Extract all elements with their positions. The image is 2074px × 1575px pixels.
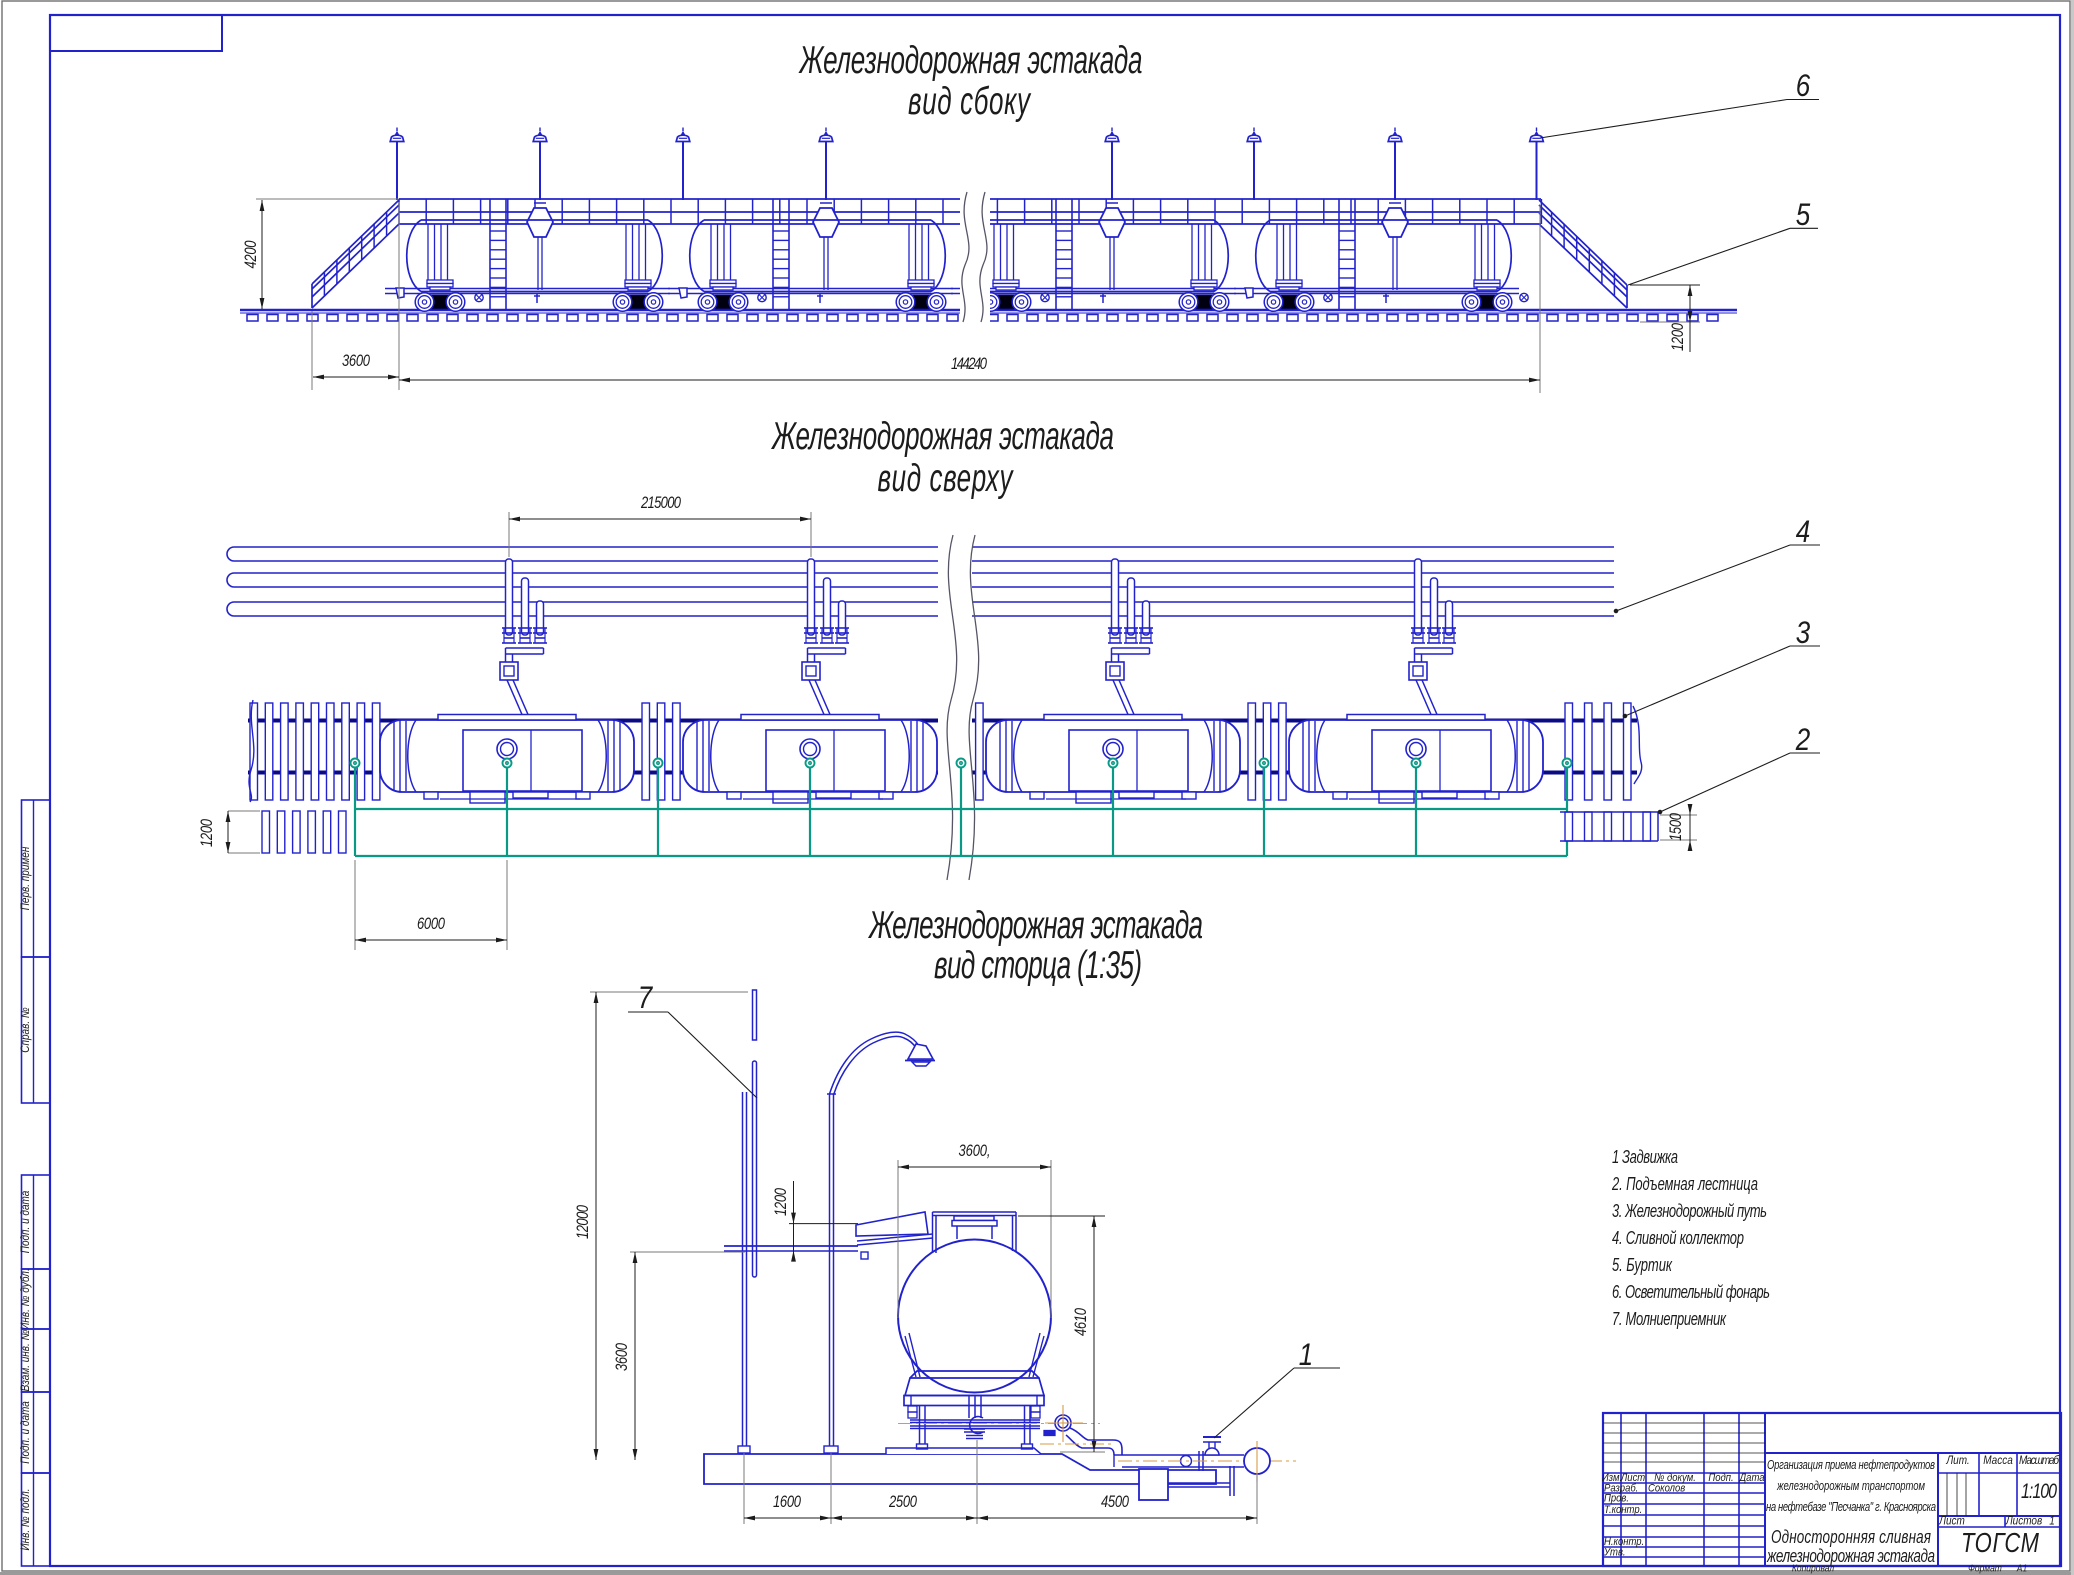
svg-text:Т.контр.: Т.контр. bbox=[1604, 1504, 1642, 1516]
svg-text:Железнодорожная эстакада: Железнодорожная эстакада bbox=[867, 904, 1203, 948]
svg-text:4610: 4610 bbox=[1073, 1307, 1091, 1336]
svg-text:Односторонняя сливная: Односторонняя сливная bbox=[1771, 1527, 1931, 1547]
svg-text:3. Железнодорожный путь: 3. Железнодорожный путь bbox=[1612, 1202, 1767, 1222]
svg-text:6000: 6000 bbox=[417, 916, 446, 934]
svg-text:1200: 1200 bbox=[199, 818, 217, 847]
svg-text:215000: 215000 bbox=[640, 495, 682, 513]
svg-text:А1: А1 bbox=[2016, 1563, 2027, 1574]
svg-text:Утв.: Утв. bbox=[1603, 1547, 1625, 1559]
svg-text:6. Осветительный фонарь: 6. Осветительный фонарь bbox=[1612, 1283, 1770, 1303]
svg-text:1200: 1200 bbox=[1670, 322, 1688, 351]
svg-text:железнодорожным транспортом: железнодорожным транспортом bbox=[1776, 1480, 1925, 1494]
svg-text:2. Подъемная лестница: 2. Подъемная лестница bbox=[1611, 1175, 1758, 1195]
svg-text:Организация приема нефтепродук: Организация приема нефтепродуктов bbox=[1767, 1459, 1935, 1473]
svg-text:3600: 3600 bbox=[614, 1342, 632, 1371]
svg-text:1: 1 bbox=[1299, 1338, 1313, 1373]
svg-text:1200: 1200 bbox=[773, 1187, 791, 1216]
svg-text:Подп. и дата: Подп. и дата bbox=[19, 1401, 32, 1464]
svg-text:5. Буртик: 5. Буртик bbox=[1612, 1256, 1673, 1276]
svg-text:на нефтебазе "Песчанка" г. Кра: на нефтебазе "Песчанка" г. Красноярска bbox=[1766, 1501, 1936, 1515]
svg-text:6: 6 bbox=[1796, 69, 1810, 104]
svg-text:Инв. № дубл.: Инв. № дубл. bbox=[19, 1268, 32, 1329]
svg-text:2: 2 bbox=[1795, 723, 1810, 758]
svg-text:7: 7 bbox=[638, 981, 653, 1016]
svg-text:Подп.: Подп. bbox=[1708, 1472, 1733, 1484]
svg-text:5: 5 bbox=[1796, 198, 1811, 233]
svg-text:Подп. и дата: Подп. и дата bbox=[19, 1191, 32, 1254]
svg-text:Инв. № подл.: Инв. № подл. bbox=[19, 1488, 32, 1550]
svg-text:Лит.: Лит. bbox=[1945, 1454, 1969, 1467]
svg-text:Листов: Листов bbox=[2005, 1515, 2042, 1528]
svg-text:4. Сливной коллектор: 4. Сливной коллектор bbox=[1612, 1229, 1744, 1249]
svg-text:4200: 4200 bbox=[243, 240, 261, 269]
svg-text:Взам. инв. №: Взам. инв. № bbox=[19, 1329, 32, 1391]
svg-text:1500: 1500 bbox=[1668, 812, 1686, 841]
svg-text:Железнодорожная эстакада: Железнодорожная эстакада bbox=[798, 39, 1143, 83]
svg-text:ТОГСМ: ТОГСМ bbox=[1961, 1528, 2039, 1559]
svg-text:Формат: Формат bbox=[1968, 1563, 2002, 1574]
svg-text:3600: 3600 bbox=[342, 353, 371, 371]
svg-text:Копировал: Копировал bbox=[1792, 1563, 1835, 1574]
svg-text:Пров.: Пров. bbox=[1604, 1493, 1629, 1505]
svg-text:вид сбоку: вид сбоку bbox=[908, 80, 1032, 124]
svg-text:4: 4 bbox=[1796, 515, 1810, 550]
svg-text:Справ. №: Справ. № bbox=[19, 1007, 32, 1053]
svg-text:2500: 2500 bbox=[888, 1494, 918, 1512]
svg-text:1600: 1600 bbox=[773, 1494, 802, 1512]
svg-text:1 Задвижка: 1 Задвижка bbox=[1612, 1148, 1678, 1168]
svg-text:7. Молниеприемник: 7. Молниеприемник bbox=[1612, 1310, 1727, 1330]
svg-text:144240: 144240 bbox=[951, 356, 988, 374]
svg-text:Железнодорожная эстакада: Железнодорожная эстакада bbox=[770, 415, 1114, 459]
svg-text:1:100: 1:100 bbox=[2021, 1479, 2058, 1503]
svg-text:12000: 12000 bbox=[575, 1204, 593, 1239]
svg-text:Масса: Масса bbox=[1983, 1454, 2013, 1467]
svg-text:1: 1 bbox=[2049, 1515, 2055, 1528]
svg-text:вид сторца (1:35): вид сторца (1:35) bbox=[934, 944, 1142, 988]
svg-text:Дата: Дата bbox=[1739, 1472, 1765, 1484]
svg-text:3: 3 bbox=[1796, 616, 1810, 651]
svg-text:вид сверху: вид сверху bbox=[878, 457, 1015, 501]
svg-text:3600,: 3600, bbox=[959, 1143, 991, 1161]
svg-text:4500: 4500 bbox=[1101, 1494, 1130, 1512]
svg-text:Лист: Лист bbox=[1938, 1515, 1965, 1528]
svg-text:Перв. примен: Перв. примен bbox=[19, 847, 32, 911]
svg-text:Соколов: Соколов bbox=[1648, 1483, 1686, 1495]
svg-text:Масштаб: Масштаб bbox=[2019, 1454, 2060, 1467]
